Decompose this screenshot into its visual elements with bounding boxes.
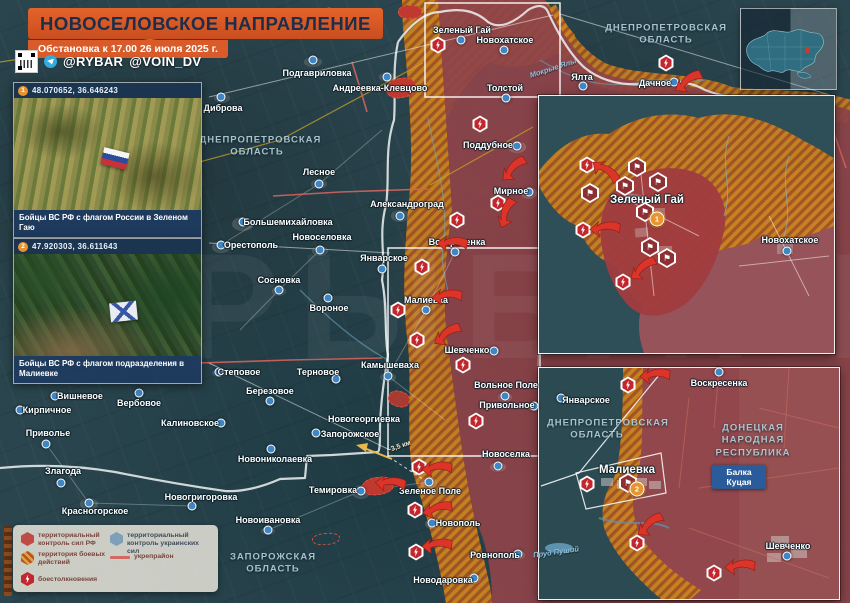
social-bar: @RYBAR @VOIN_DV [15, 50, 201, 73]
photo-number-badge: 2 [18, 242, 28, 252]
legend-fortification-icon [110, 556, 130, 559]
photo-header: 1 48.070652, 36.646243 [14, 83, 201, 98]
photo-number-badge: 1 [18, 86, 28, 96]
photo-card-malievka: 2 47.920303, 36.611643 Бойцы ВС РФ с фла… [13, 238, 202, 384]
photo-coordinates: 48.070652, 36.646243 [32, 86, 118, 95]
legend-fortification-label: укрепрайон [134, 553, 174, 561]
unit-flag [109, 301, 138, 323]
legend-rf-control-icon [21, 532, 34, 546]
qr-code [15, 50, 38, 73]
russian-flag [100, 147, 129, 170]
legend-clash-label: боестолкновения [38, 576, 97, 584]
photo-coordinates: 47.920303, 36.611643 [32, 242, 118, 251]
telegram-icon [44, 55, 57, 68]
advance-blob [398, 5, 422, 19]
handle-voin-dv[interactable]: @VOIN_DV [129, 54, 201, 69]
inset-map-zeleny-gai [538, 95, 835, 354]
photo-image-russian-flag-field [14, 98, 201, 210]
legend-ua-control-icon [110, 532, 123, 546]
photo-card-zeleny-gai: 1 48.070652, 36.646243 Бойцы ВС РФ с фла… [13, 82, 202, 238]
handle-rybar[interactable]: @RYBAR [63, 54, 123, 69]
ukraine-minimap [740, 8, 837, 90]
inset-map-malievka [538, 367, 840, 600]
legend-battle-zone-label: территория боевых действий [38, 551, 106, 567]
photo-image-unit-flag-trench [14, 254, 201, 356]
legend-rf-control-label: территориальный контроль сил РФ [38, 532, 106, 548]
map-title: НОВОСЕЛОВСКОЕ НАПРАВЛЕНИЕ [28, 8, 383, 39]
photo-header: 2 47.920303, 36.611643 [14, 239, 201, 254]
legend-accent-bar [4, 526, 12, 596]
legend-battle-zone-icon [21, 551, 34, 565]
legend-clash-icon [21, 572, 34, 586]
map-legend: территориальный контроль сил РФ территор… [13, 525, 218, 592]
minimap-location-marker [805, 47, 810, 53]
situation-map: РЫБАРЬ [0, 0, 850, 603]
photo-caption: Бойцы ВС РФ с флагом подразделения в Мал… [14, 356, 201, 383]
photo-caption: Бойцы ВС РФ с флагом России в Зеленом Га… [14, 210, 201, 237]
